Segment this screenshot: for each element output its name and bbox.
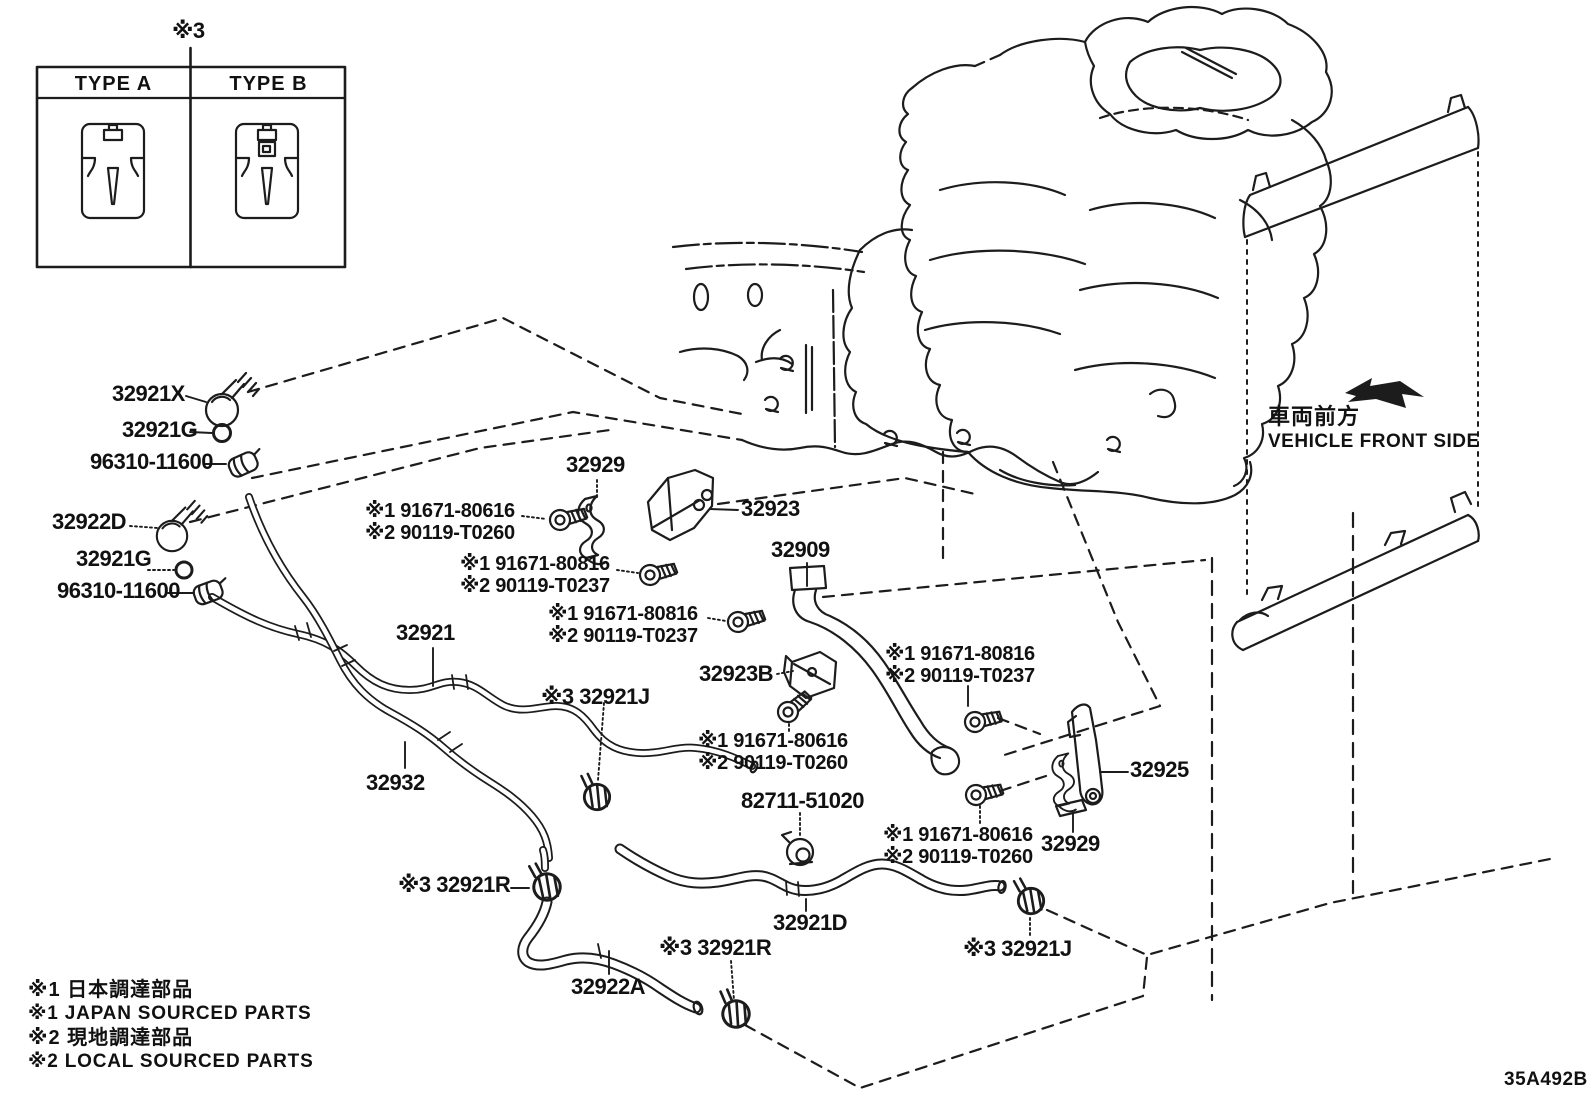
clamp-32921R-2 bbox=[713, 988, 754, 1030]
fastener-label-5-line2: ※2 90119-T0237 bbox=[885, 666, 1035, 686]
bolt-91671-80616-3 bbox=[964, 780, 1004, 807]
fastener-label-4-line2: ※2 90119-T0260 bbox=[698, 753, 848, 773]
fastener-label-3-line2: ※2 90119-T0237 bbox=[548, 626, 698, 646]
bolt-91671-80816-3 bbox=[963, 707, 1003, 734]
fastener-label-5-line1: ※1 91671-80816 bbox=[885, 644, 1035, 664]
part-label-32923: 32923 bbox=[741, 498, 800, 520]
fastener-label-3-line1: ※1 91671-80816 bbox=[548, 604, 698, 624]
elbow-union-32921X bbox=[206, 373, 259, 426]
part-label-32921G-1: 32921G bbox=[122, 419, 197, 441]
o-ring-32921G-2 bbox=[176, 562, 192, 578]
fastener-label-6-line2: ※2 90119-T0260 bbox=[883, 847, 1033, 867]
bolt-91671-80816-2 bbox=[726, 606, 767, 634]
note-line-1: ※1 日本調達部品 bbox=[28, 980, 193, 1000]
type-a-header: TYPE A bbox=[37, 74, 190, 94]
type-table-note-ref: ※3 bbox=[172, 20, 205, 42]
note-line-3: ※2 現地調達部品 bbox=[28, 1028, 193, 1048]
part-label-32909: 32909 bbox=[771, 539, 830, 561]
note-line-4: ※2 LOCAL SOURCED PARTS bbox=[28, 1052, 314, 1071]
part-label-32929-bottom: 32929 bbox=[1041, 833, 1100, 855]
elbow-union-32922D bbox=[157, 501, 207, 551]
fastener-label-2-line2: ※2 90119-T0237 bbox=[460, 576, 610, 596]
part-label-32932: 32932 bbox=[366, 772, 425, 794]
part-label-32921X: 32921X bbox=[112, 383, 185, 405]
bolt-91671-80616-1 bbox=[548, 504, 589, 532]
type-b-clamp-icon bbox=[236, 124, 298, 218]
bolt-91671-80616-2 bbox=[774, 687, 815, 726]
vehicle-front-label-jp: 車両前方 bbox=[1268, 406, 1360, 428]
bolt-91671-80816-1 bbox=[638, 559, 679, 587]
type-b-header: TYPE B bbox=[192, 74, 345, 94]
part-label-32921J-1: ※3 32921J bbox=[541, 686, 650, 708]
engine-assembly-sketch bbox=[673, 7, 1332, 503]
fastener-label-1-line2: ※2 90119-T0260 bbox=[365, 523, 515, 543]
part-label-32921J-2: ※3 32921J bbox=[963, 938, 1072, 960]
part-label-32922D: 32922D bbox=[52, 511, 126, 533]
clamp-32921J-1 bbox=[575, 773, 613, 812]
pipe-32932 bbox=[249, 497, 549, 858]
radiator-sketch bbox=[1232, 95, 1478, 650]
part-label-32921R-2: ※3 32921R bbox=[659, 937, 771, 959]
part-label-32921: 32921 bbox=[396, 622, 455, 644]
note-line-2: ※1 JAPAN SOURCED PARTS bbox=[28, 1004, 311, 1023]
union-96310-1 bbox=[227, 447, 267, 479]
part-label-32922A: 32922A bbox=[571, 976, 645, 998]
part-label-32921D: 32921D bbox=[773, 912, 847, 934]
part-label-32921G-2: 32921G bbox=[76, 548, 151, 570]
clamp-82711 bbox=[782, 832, 813, 865]
fastener-label-6-line1: ※1 91671-80616 bbox=[883, 825, 1033, 845]
fittings bbox=[157, 373, 266, 606]
part-label-32923B: 32923B bbox=[699, 663, 773, 685]
part-label-96310-11600-2: 96310-11600 bbox=[57, 580, 180, 602]
fastener-label-4-line1: ※1 91671-80616 bbox=[698, 731, 848, 751]
part-label-32925: 32925 bbox=[1130, 759, 1189, 781]
bracket-32925 bbox=[1068, 705, 1102, 805]
part-label-96310-11600-1: 96310-11600 bbox=[90, 451, 213, 473]
part-label-32929-top: 32929 bbox=[566, 454, 625, 476]
bracket-32923B bbox=[784, 652, 836, 698]
fastener-label-1-line1: ※1 91671-80616 bbox=[365, 501, 515, 521]
part-label-32921R-1: ※3 32921R bbox=[398, 874, 510, 896]
fastener-label-2-line1: ※1 91671-80816 bbox=[460, 554, 610, 574]
bracket-32923 bbox=[648, 470, 713, 540]
figure-code: 35A492B bbox=[1504, 1070, 1588, 1089]
parts-diagram-page: ※3 TYPE A TYPE B 32921X 32921G 96310-116… bbox=[0, 0, 1592, 1099]
vehicle-front-label-en: VEHICLE FRONT SIDE bbox=[1268, 432, 1480, 451]
part-label-82711-51020: 82711-51020 bbox=[741, 790, 864, 812]
clamp-32921J-2 bbox=[1010, 878, 1047, 916]
type-a-clamp-icon bbox=[82, 124, 144, 218]
